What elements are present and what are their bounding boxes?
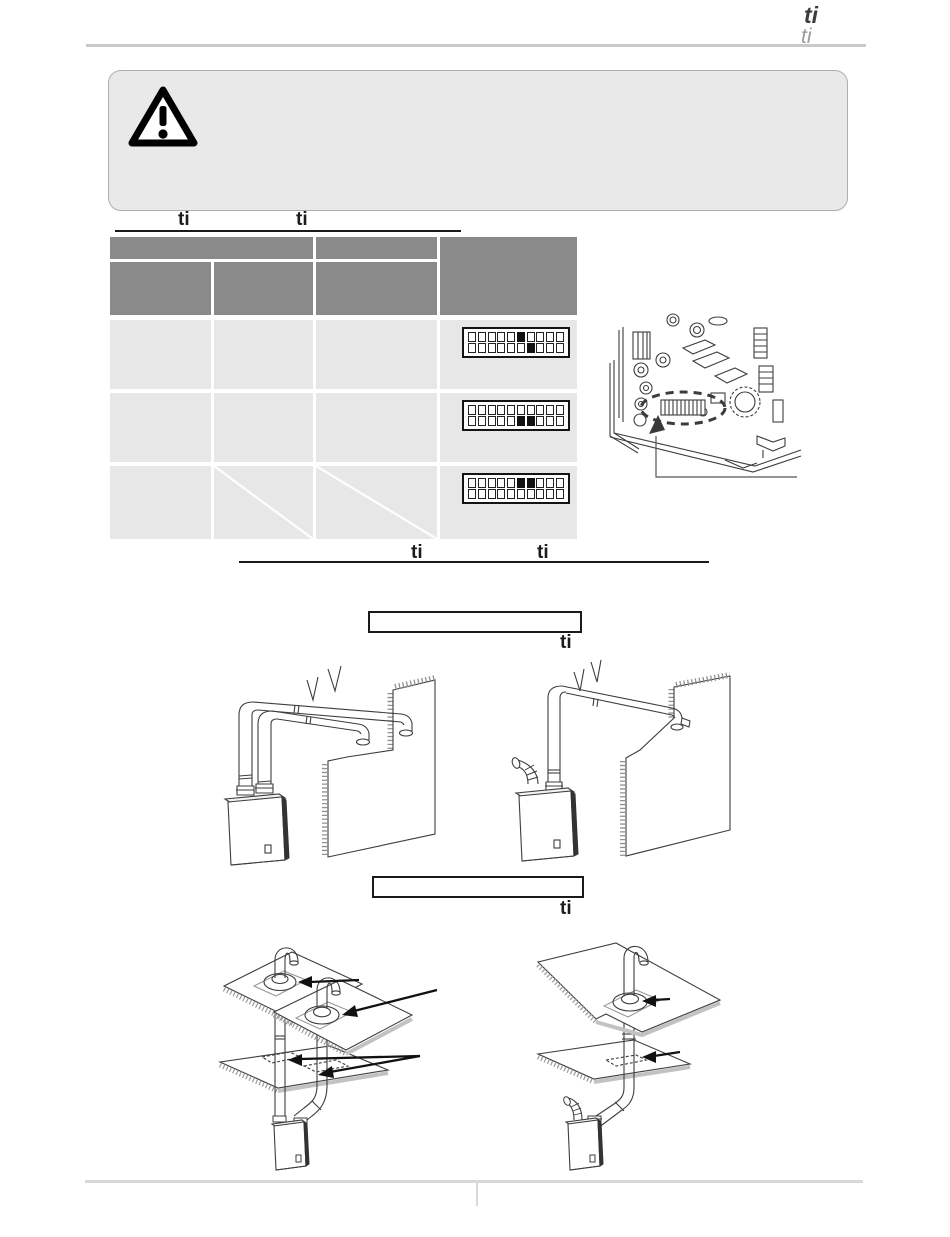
wall [623, 675, 730, 856]
vent-section-heading-rule [239, 561, 709, 563]
row1-col1 [110, 320, 211, 389]
footer-rule [85, 1180, 863, 1183]
vertical-figure-caption: ti [560, 898, 572, 920]
vertical-figure-label-box [372, 876, 584, 898]
sidewall-figure-label-box [368, 611, 582, 633]
row2-col2 [214, 393, 313, 462]
water-heater [272, 1116, 309, 1170]
vertical-concentric-diagram [518, 938, 748, 1178]
flow-direction-arrows [307, 666, 341, 700]
dip-switch-row2 [462, 400, 570, 431]
row1-col2 [214, 320, 313, 389]
vertical-twin-pipe-diagram [212, 938, 440, 1178]
th-col2 [214, 262, 313, 315]
water-heater [562, 1096, 603, 1170]
dip-switch-callout-line [656, 436, 797, 477]
th-merged-col1-col2 [110, 237, 313, 259]
row2-col3 [316, 393, 437, 462]
ceiling-panel [220, 1046, 388, 1091]
wall [325, 678, 435, 857]
th-col4-dip-setting [440, 237, 577, 315]
na-diagonal-line [214, 466, 313, 539]
row2-col1 [110, 393, 211, 462]
control-board-figure [605, 300, 805, 485]
dip-section-heading-word-2: ti [296, 209, 308, 231]
th-col1 [110, 262, 211, 315]
flow-direction-arrows [574, 660, 601, 691]
row3-col1 [110, 466, 211, 539]
dip-switch-bank [661, 400, 705, 415]
water-heater [225, 784, 289, 865]
manual-page: ti ti ti ti [0, 0, 950, 1237]
row1-col3 [316, 320, 437, 389]
dip-switch-pointer-arrow [649, 415, 665, 434]
sidewall-twin-pipe-diagram [195, 658, 480, 876]
dip-section-heading-rule [115, 230, 461, 232]
na-diagonal-line [316, 466, 437, 539]
row3-col3-na [316, 466, 437, 539]
board-components [633, 314, 783, 426]
roof-panel [538, 943, 720, 1035]
water-heater [511, 757, 578, 861]
dip-switch-row1 [462, 327, 570, 358]
dip-section-heading-word-1: ti [178, 209, 190, 231]
sidewall-concentric-diagram [490, 658, 775, 876]
header-rule [86, 44, 866, 47]
footer-divider [476, 1180, 478, 1206]
th-col3 [316, 262, 437, 315]
th-col3-top [316, 237, 437, 259]
sidewall-figure-caption: ti [560, 632, 572, 654]
dip-switch-row3 [462, 473, 570, 504]
row3-col2-na [214, 466, 313, 539]
ceiling-panel [538, 1040, 690, 1082]
warning-triangle-icon [127, 84, 199, 150]
warning-box [108, 70, 848, 211]
dip-switch-table [110, 237, 577, 539]
